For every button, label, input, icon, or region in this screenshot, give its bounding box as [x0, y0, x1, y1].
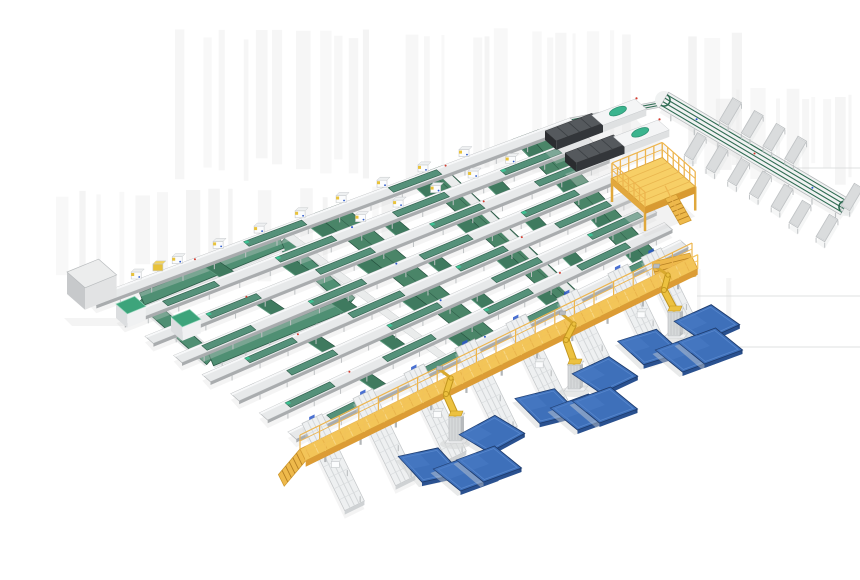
shuttle-tab: [459, 151, 462, 154]
spur-item-box: [433, 412, 441, 418]
bg-streak: [811, 97, 815, 163]
shuttle-tab: [131, 273, 134, 276]
bg-streak: [406, 35, 419, 186]
spur-item-top: [535, 359, 545, 362]
lane-sensor-dot: [194, 258, 196, 260]
bg-streak: [244, 40, 249, 181]
spur-item-box: [637, 312, 645, 318]
shuttle-dot: [261, 230, 263, 232]
shuttle-carriage: [153, 264, 163, 271]
lane-sensor-dot: [521, 236, 523, 238]
bg-streak: [175, 29, 184, 179]
shuttle-tab: [213, 242, 216, 245]
shuttle-dot: [138, 276, 140, 278]
spur-item-box: [535, 362, 543, 368]
shuttle-tab: [254, 227, 257, 230]
bg-streak: [296, 31, 311, 169]
shuttle-top: [377, 177, 390, 180]
robot-gripper: [653, 264, 660, 268]
shuttle-top: [131, 269, 144, 272]
machine-status-light: [658, 118, 660, 120]
lane-sensor-dot: [559, 272, 561, 274]
robot-joint: [666, 273, 669, 276]
shuttle-dot: [438, 190, 440, 192]
automation-line-render: Isometric 3D render of an automated conv…: [0, 0, 860, 580]
robot-joint: [564, 338, 568, 342]
shuttle-tab: [377, 181, 380, 184]
machine-status-light: [635, 97, 637, 99]
robot-joint: [572, 322, 575, 325]
bg-streak: [473, 38, 482, 161]
lane-sensor-dot: [297, 333, 299, 335]
bg-streak: [849, 95, 852, 177]
shuttle-tab: [356, 216, 359, 219]
bg-streak: [441, 35, 444, 174]
spur-item-box: [331, 462, 339, 468]
bg-streak: [135, 195, 150, 264]
shuttle-dot: [343, 200, 345, 202]
shuttle-tab: [418, 166, 421, 169]
bg-streak: [119, 192, 124, 287]
robot-base-block: [449, 411, 463, 416]
robot-joint: [662, 288, 666, 292]
shuttle-dot: [179, 261, 181, 263]
shuttle-dot: [425, 169, 427, 171]
robot-base-block: [568, 359, 582, 364]
lane-sensor-dot: [351, 226, 353, 228]
bg-streak: [485, 36, 490, 167]
shuttle-top: [172, 254, 185, 257]
robot-joint: [449, 376, 452, 379]
lane-sensor-dot: [445, 165, 447, 167]
bg-streak: [203, 37, 211, 167]
bg-streak: [219, 30, 225, 170]
shuttle-top: [459, 147, 472, 150]
shuttle-tab: [295, 212, 298, 215]
lane-sensor-dot: [484, 336, 486, 338]
bg-streak: [424, 36, 430, 165]
lane-sensor-dot: [348, 371, 350, 373]
shuttle-top: [336, 193, 349, 196]
robot-base-block: [668, 306, 682, 311]
shuttle-dot: [513, 161, 515, 163]
robot-gripper: [436, 366, 443, 370]
bg-streak: [320, 31, 332, 174]
shuttle-tab: [336, 197, 339, 200]
spur-item-top: [331, 459, 341, 462]
shuttle-dot: [384, 184, 386, 186]
shuttle-dot: [466, 154, 468, 156]
bg-streak: [272, 30, 282, 165]
spine-dot: [696, 118, 698, 120]
lane-sensor-dot: [440, 299, 442, 301]
shuttle-dot: [400, 204, 402, 206]
shuttle-dot: [302, 215, 304, 217]
lane-sensor-dot: [245, 296, 247, 298]
lane-sensor-dot: [395, 263, 397, 265]
shuttle-tab: [393, 201, 396, 204]
bg-streak: [835, 97, 846, 185]
shuttle-dot: [363, 219, 365, 221]
bg-streak: [56, 197, 69, 275]
spine-dot: [754, 153, 756, 155]
shuttle-tab: [506, 158, 509, 161]
spur-item-top: [433, 409, 443, 412]
shuttle-dot: [475, 175, 477, 177]
bg-streak: [334, 36, 342, 160]
spine-dot: [811, 187, 813, 189]
spur-item-top: [637, 309, 647, 312]
bg-streak: [349, 38, 358, 173]
shuttle-tab: [431, 187, 434, 190]
scene-canvas: Isometric 3D render of an automated conv…: [0, 0, 860, 580]
bg-streak: [256, 30, 268, 158]
shuttle-dot: [220, 246, 222, 248]
bg-streak: [363, 30, 369, 179]
bg-streak: [823, 99, 831, 167]
shuttle-tab: [468, 172, 471, 175]
robot-joint: [444, 392, 448, 396]
shuttle-tab: [172, 258, 175, 261]
lane-sensor-dot: [483, 200, 485, 202]
robot-gripper: [559, 311, 566, 315]
